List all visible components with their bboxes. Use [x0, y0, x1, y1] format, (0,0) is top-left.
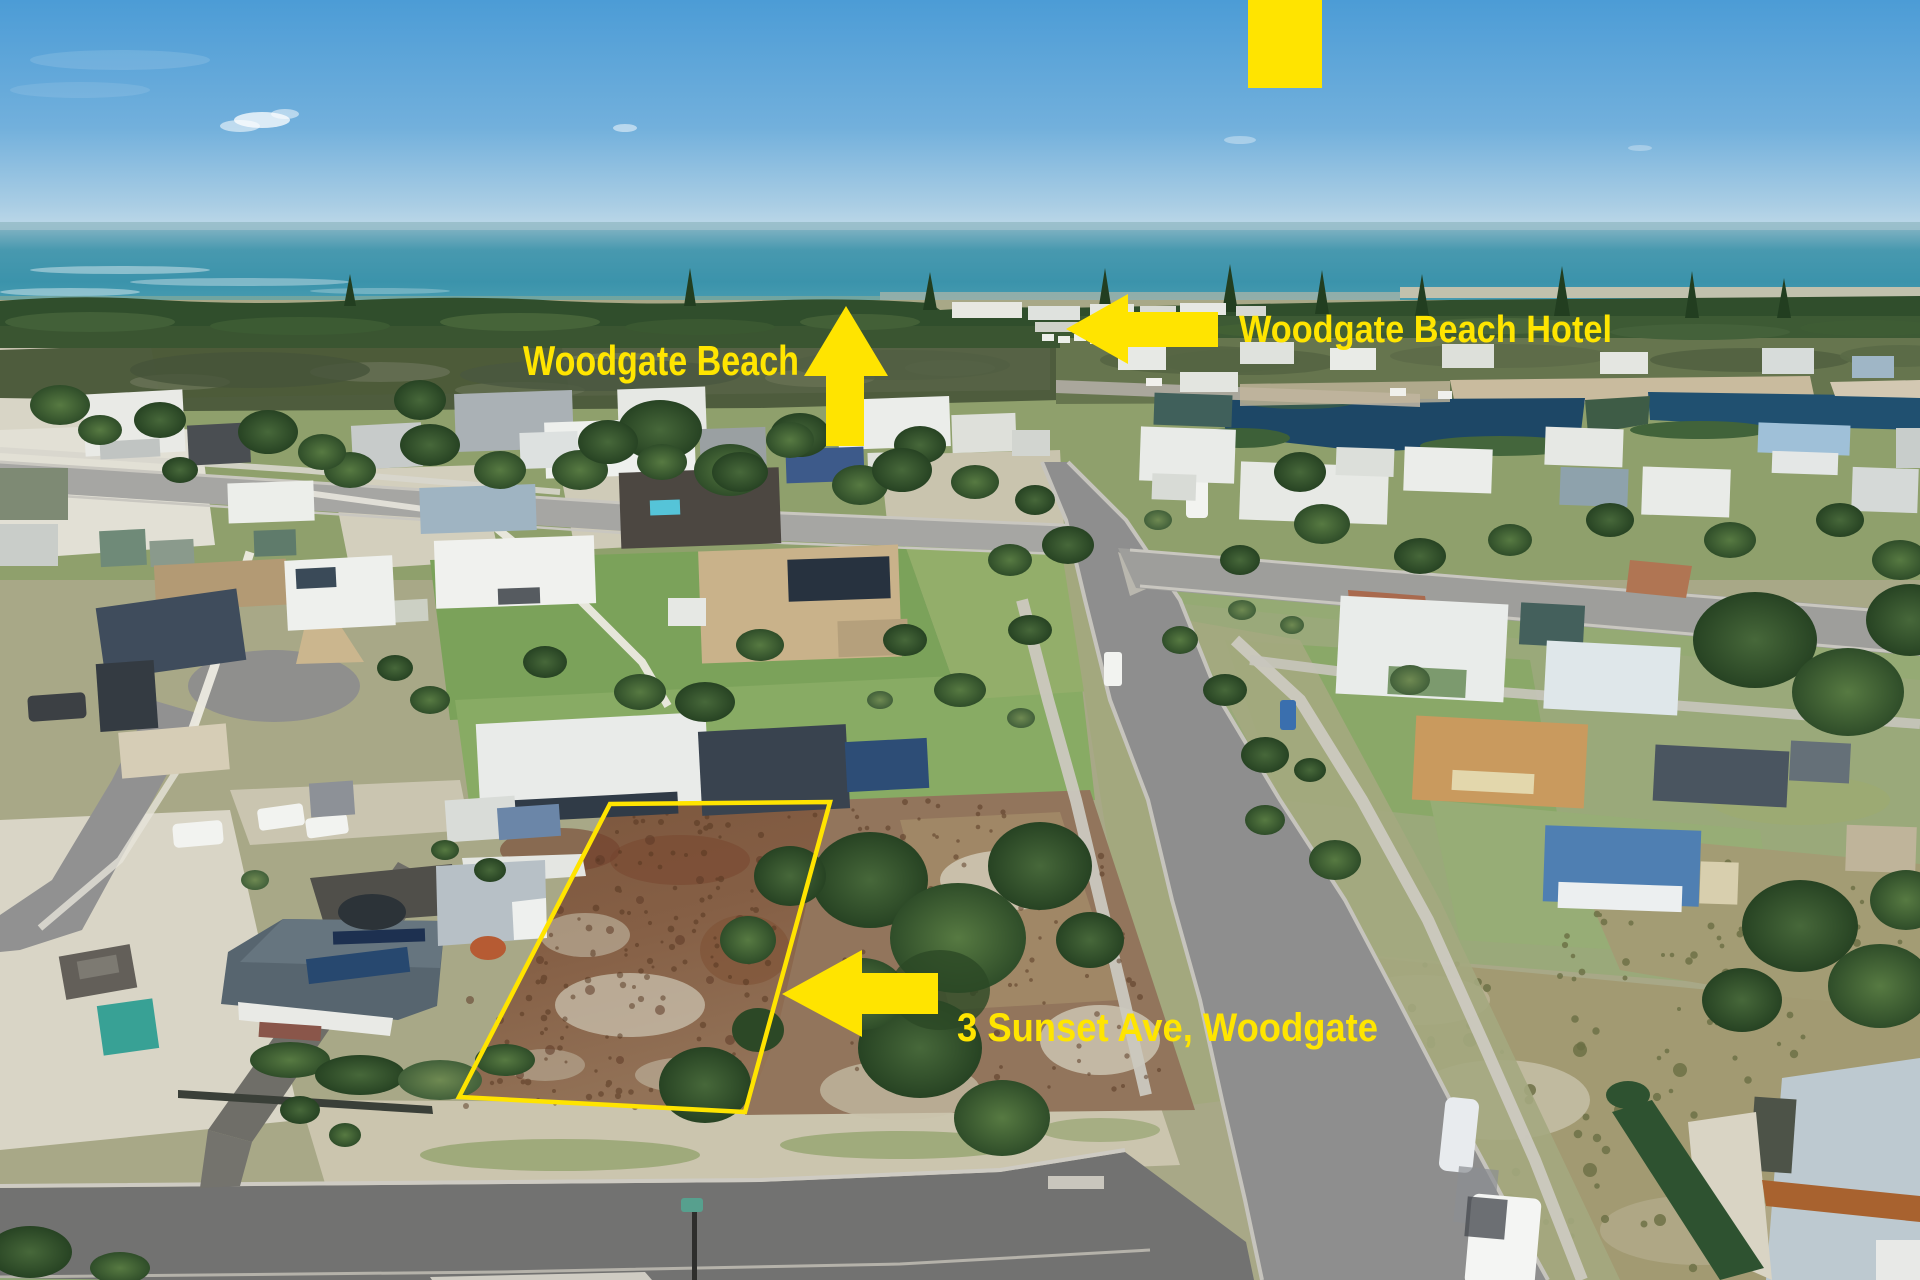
- svg-text:3 Sunset Ave, Woodgate: 3 Sunset Ave, Woodgate: [957, 1006, 1378, 1050]
- svg-text:Woodgate Beach Hotel: Woodgate Beach Hotel: [1239, 309, 1612, 351]
- svg-text:Woodgate Beach: Woodgate Beach: [523, 337, 799, 384]
